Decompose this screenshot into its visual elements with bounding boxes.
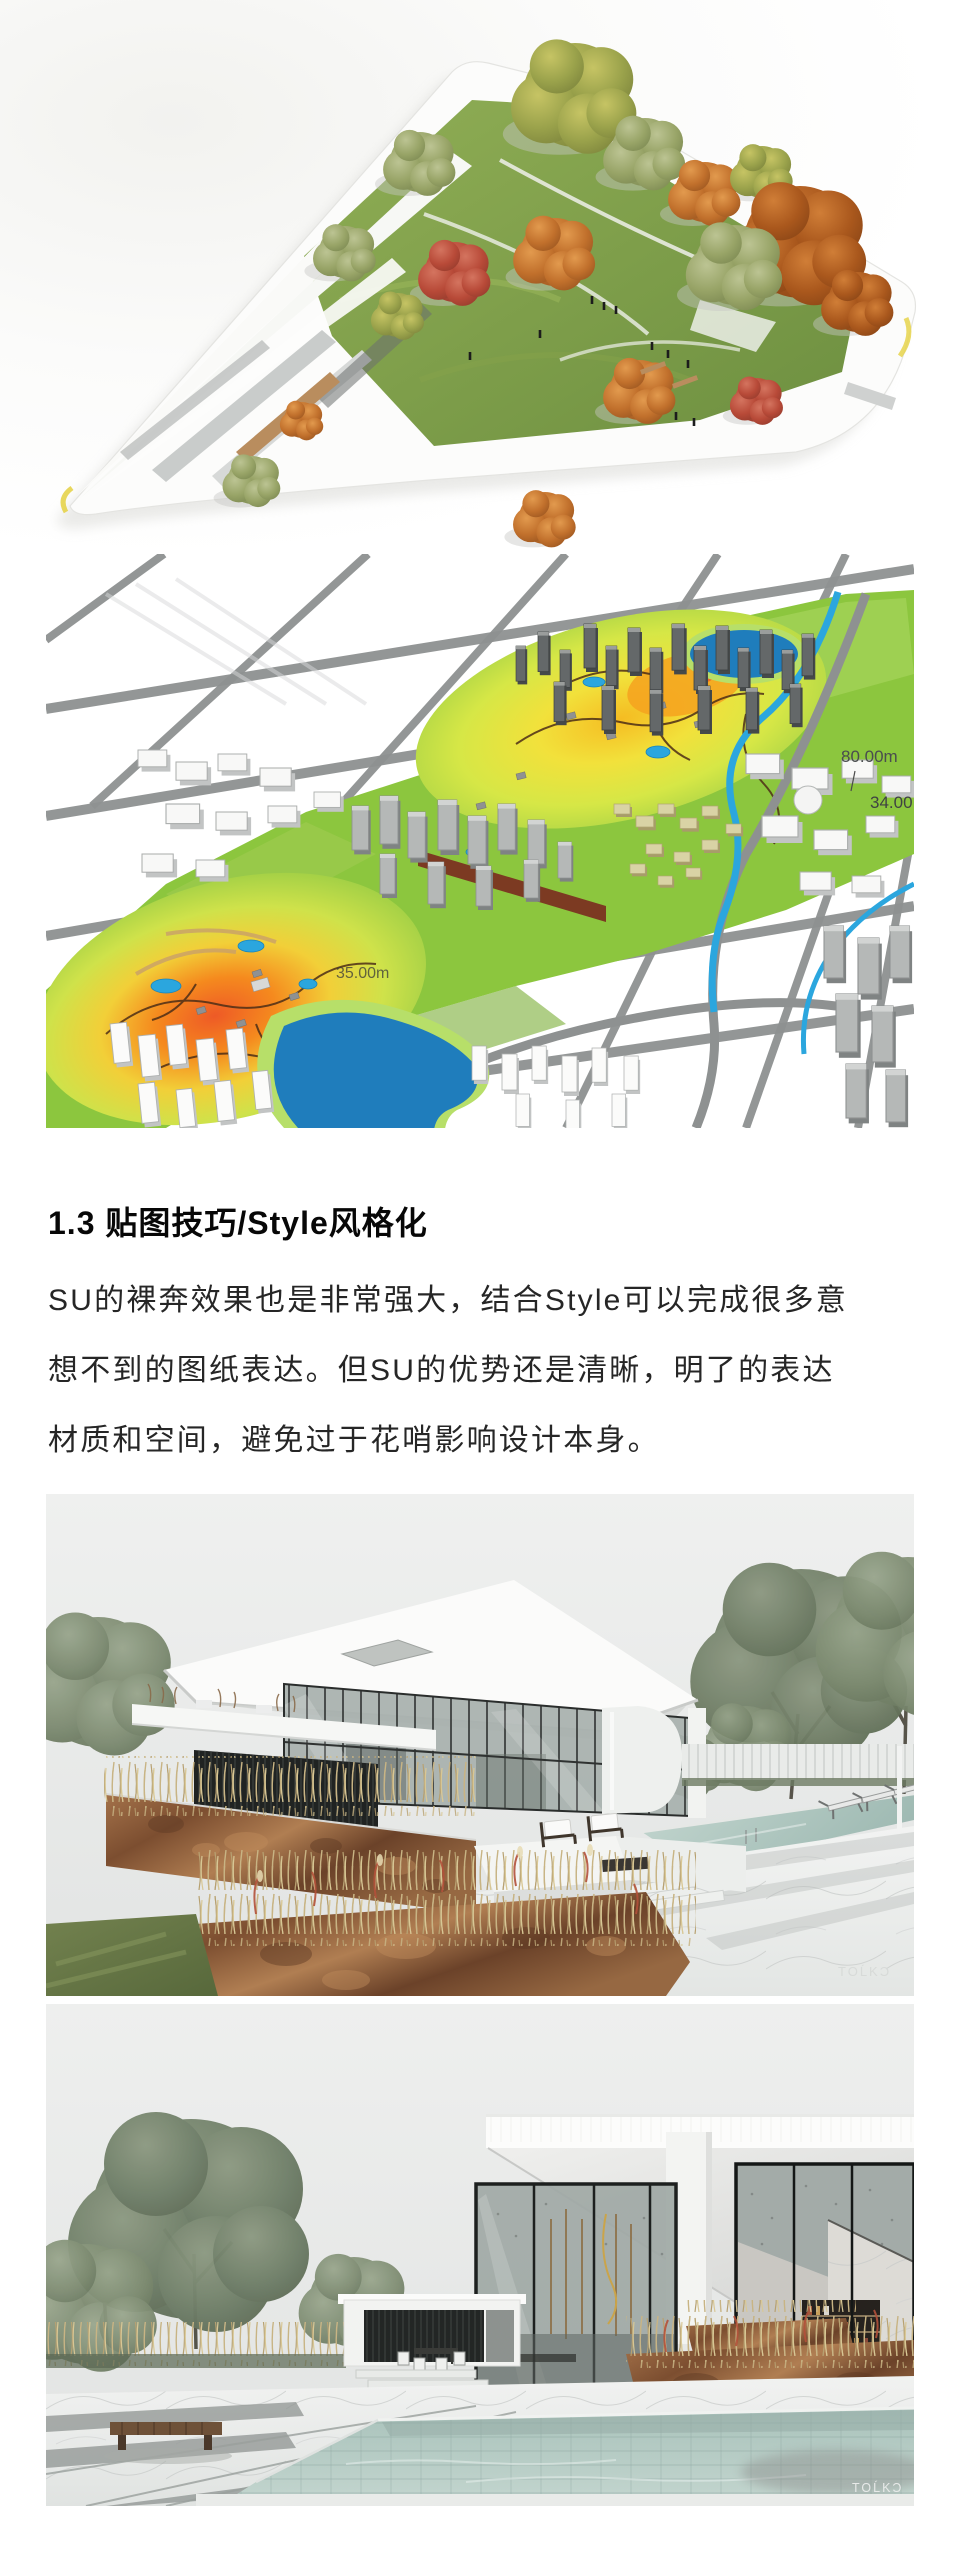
- villa-terrace-illustration: TOĹKƆ: [46, 1494, 914, 1996]
- figure-city-heatmap[interactable]: 80.00m 34.00 35.00m: [46, 554, 914, 1128]
- paragraph-line-2: 想不到的图纸表达。但SU的优势还是清晰，明了的表达: [48, 1336, 938, 1406]
- figure-villa-terrace[interactable]: TOĹKƆ: [46, 1494, 914, 1996]
- figure-villa-pool[interactable]: TOĹKƆ: [46, 2004, 914, 2506]
- villa-pool-illustration: TOĹKƆ: [46, 2004, 914, 2506]
- foreground-planter: [186, 1844, 696, 1996]
- elevation-label-34m: 34.00: [870, 793, 913, 812]
- article-page: 80.00m 34.00 35.00m 1.3 贴图技巧/Style风格化 SU…: [0, 0, 960, 2576]
- watermark: TOĹKƆ: [852, 2480, 903, 2495]
- elevation-label-80m: 80.00m: [841, 747, 898, 766]
- fence: [682, 1744, 914, 1786]
- elevation-label-35m: 35.00m: [336, 965, 389, 982]
- paragraph-line-3: 材质和空间，避免过于花哨影响设计本身。: [48, 1406, 938, 1476]
- watermark: TOĹKƆ: [838, 1964, 891, 1979]
- lawn: [46, 1914, 218, 1996]
- city-heatmap-illustration: 80.00m 34.00 35.00m: [46, 554, 914, 1128]
- paragraph-line-1: SU的裸奔效果也是非常强大，结合Style可以完成很多意: [48, 1266, 938, 1336]
- section-heading: 1.3 贴图技巧/Style风格化: [48, 1198, 928, 1244]
- figure-park-model[interactable]: [0, 0, 960, 548]
- park-model-illustration: [0, 0, 960, 548]
- article-paragraph: SU的裸奔效果也是非常强大，结合Style可以完成很多意 想不到的图纸表达。但S…: [48, 1266, 938, 1476]
